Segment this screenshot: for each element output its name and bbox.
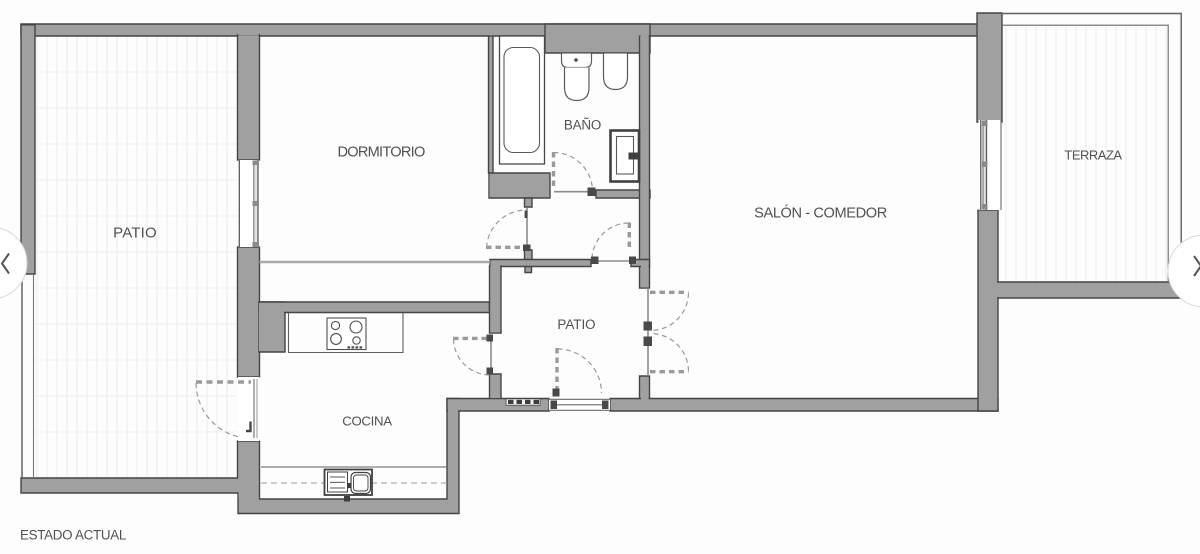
svg-text:PATIO: PATIO <box>113 225 157 242</box>
svg-text:TERRAZA: TERRAZA <box>1064 148 1122 163</box>
svg-text:BAÑO: BAÑO <box>564 118 601 133</box>
svg-text:SALÓN - COMEDOR: SALÓN - COMEDOR <box>754 205 887 222</box>
svg-text:DORMITORIO: DORMITORIO <box>337 145 424 161</box>
svg-text:ESTADO ACTUAL: ESTADO ACTUAL <box>20 528 126 543</box>
svg-text:PATIO: PATIO <box>557 317 595 332</box>
svg-text:COCINA: COCINA <box>342 414 392 429</box>
